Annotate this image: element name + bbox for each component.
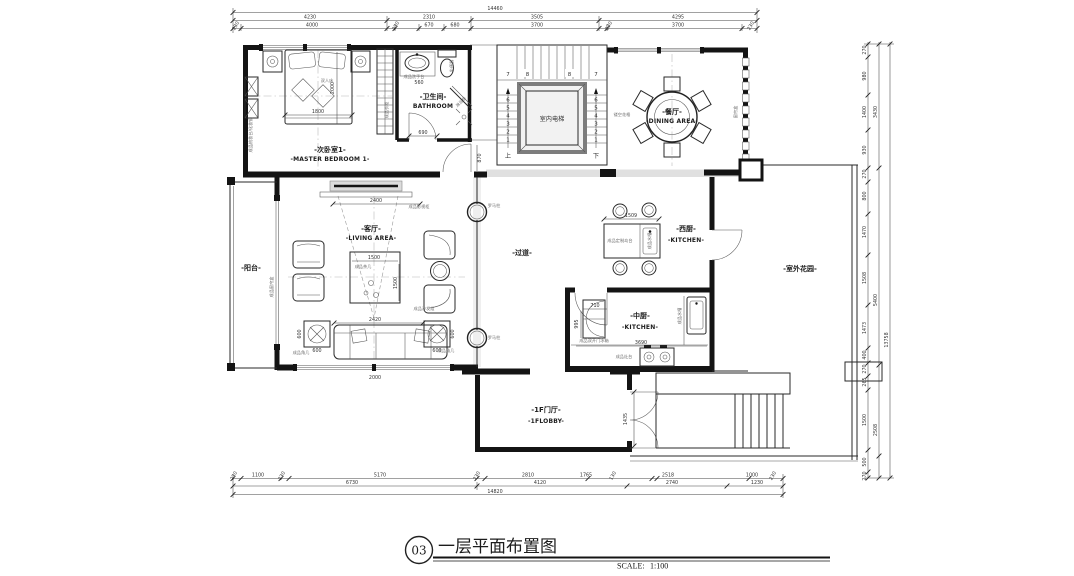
dim-bottom: 6730 [346, 480, 358, 486]
walls [243, 44, 749, 452]
room-label-bathroom-cn: -卫生间- [420, 92, 447, 101]
stair-number: 6 [594, 98, 598, 104]
nightstand [263, 51, 282, 72]
dim-right-outer: 3430 [873, 106, 879, 118]
label-tv-cabinet: 成品影视柜 [409, 203, 430, 210]
stair-number: 3 [506, 122, 510, 128]
dim-fridge-d: 995 [574, 319, 580, 328]
room-living: 2400 1500 1500 2420 600 600 600 600 2000… [268, 181, 501, 381]
dim-sofa: 2420 [369, 317, 381, 323]
stair-number: 2 [594, 130, 598, 136]
label-column: 罗马柱 [488, 202, 501, 209]
label-curtain: 成品窗帘盒 [268, 276, 275, 298]
room-mid-kitchen: 710 995 3690 成品双开门冰箱 成品灶台 成品水槽 -中厨- -KIT… [571, 293, 708, 366]
dim-top: 230 [604, 21, 614, 32]
label-stairs-down: 下 [593, 153, 599, 160]
stair-number: 5 [594, 106, 598, 112]
room-balcony [227, 177, 277, 371]
bar-stool [613, 261, 627, 275]
label-dresser: 成品梳妆台/化妆镜 [247, 117, 254, 153]
label-shower: 淋浴房 [454, 95, 468, 109]
room-label-corridor: -过道- [512, 248, 532, 257]
dim-tv: 2400 [370, 198, 382, 204]
dim-entry-door: 1435 [623, 413, 629, 425]
dim-right: 270 [862, 471, 868, 480]
title-block: 03 一层平面布置图 SCALE: 1:100 [406, 537, 831, 571]
dim-right-outer: 2508 [873, 424, 879, 436]
dim-top: 4000 [306, 23, 318, 29]
stair-number: 3 [594, 122, 598, 128]
armchair [293, 274, 324, 301]
dim-fridge-w: 710 [590, 303, 599, 309]
label-curtain-box: 窗帘盒 [732, 105, 739, 118]
dim-chain-bottom: 230 1100 230 5170 230 2810 1765 130 2518… [229, 471, 785, 498]
label-toilet: 坐便器 [448, 59, 455, 72]
room-label-living-cn: -客厅- [361, 224, 381, 233]
label-island-sink: 成品水槽 [646, 232, 653, 250]
scale-label: SCALE: [617, 562, 645, 571]
dim-top: 4230 [304, 15, 316, 21]
label-corner-table: 成品角几 [293, 349, 311, 356]
label-corner-table: 成品角几 [438, 347, 456, 354]
dim-right-outer: 5400 [873, 294, 879, 306]
floor-plan-drawing: 14460 4230 2310 3505 4295 230 4000 230 6… [0, 0, 1074, 576]
dim-right: 500 [862, 457, 868, 466]
dim-right: 1500 [862, 414, 868, 426]
dim-right: 400 [862, 350, 868, 359]
label-wardrobe: 成品衣柜 [383, 102, 390, 119]
dim-bottom: 4120 [534, 480, 546, 486]
dim-right: 270 [862, 364, 868, 373]
dim-bottom-total: 14820 [487, 489, 502, 495]
label-lattice: 镂空花格 [614, 111, 632, 118]
dim-chain-right: 270 980 1400 930 270 800 1470 1508 1473 … [862, 42, 894, 481]
dim-bottom: 1230 [751, 480, 763, 486]
dim-hall-door: 870 [477, 153, 483, 162]
dim-corner-table: 600 [297, 329, 303, 338]
corner-table [304, 321, 330, 347]
room-garden: -室外花园- [630, 160, 882, 461]
floor-plan-sheet: 14460 4230 2310 3505 4295 230 4000 230 6… [0, 0, 1074, 576]
drawing-number: 03 [411, 544, 426, 558]
label-basin: 成品洗手台 [404, 73, 425, 80]
dim-top: 2310 [423, 15, 435, 21]
dim-bottom: 1000 [746, 473, 758, 479]
sofa [334, 325, 447, 359]
dim-bed-depth: 2000 [330, 82, 336, 94]
room-label-mid-kitchen-cn: -中厨- [630, 311, 650, 320]
label-elevator: 室内电梯 [540, 115, 565, 123]
stair-number: 5 [506, 106, 510, 112]
dim-counter: 3690 [635, 340, 647, 346]
room-west-kitchen: 1509 成品定制岛台 成品水槽 -西厨- -KITCHEN- [602, 203, 742, 275]
dim-right: 270 [862, 169, 868, 178]
room-label-dining-cn: -餐厅- [662, 107, 682, 116]
label-sink: 成品水槽 [676, 307, 683, 325]
stair-number: 4 [506, 114, 510, 120]
dim-right: 800 [862, 191, 868, 200]
label-fridge: 成品双开门冰箱 [579, 337, 608, 344]
dim-bottom: 2518 [662, 473, 674, 479]
sink [687, 297, 706, 334]
dim-right: 1508 [862, 272, 868, 284]
dim-top: 670 [424, 23, 433, 29]
bar-stool [642, 261, 656, 275]
dim-bed-width: 1800 [312, 109, 324, 115]
armchair [424, 231, 455, 259]
dim-right: 930 [862, 145, 868, 154]
stair-number: 6 [506, 98, 510, 104]
garden-door [712, 230, 742, 260]
dim-bottom: 2810 [522, 473, 534, 479]
bar-stool [642, 203, 656, 217]
dim-top: 230 [746, 21, 756, 32]
dim-right: 1400 [862, 106, 868, 118]
dim-right: 1470 [862, 226, 868, 238]
dim-top: 3700 [531, 23, 543, 29]
stair-number: 8 [568, 72, 572, 78]
room-label-living-en: -LIVING AREA- [346, 235, 397, 242]
porch-steps [656, 373, 790, 448]
armchair [293, 241, 324, 268]
wardrobe [377, 49, 393, 134]
dim-coffee-table-w: 1500 [368, 255, 380, 261]
label-double-bed: 双人床 [321, 77, 334, 84]
staircase: 室内电梯 7 8 8 7 6 5 4 3 2 1 6 5 4 3 2 1 上 下 [497, 45, 607, 165]
label-sofa: 成品沙发组 [414, 305, 435, 312]
stair-number: 1 [594, 138, 598, 144]
dim-bottom: 230 [277, 471, 287, 482]
label-coffee-table: 成品茶几 [355, 263, 373, 270]
dim-right: 270 [862, 45, 868, 54]
room-label-lobby-en: -1FLOBBY- [528, 418, 564, 425]
label-island: 成品定制岛台 [607, 237, 632, 244]
washbasin [400, 52, 435, 76]
nightstand [351, 51, 370, 72]
room-label-bedroom-en: -MASTER BEDROOM 1- [290, 156, 369, 163]
label-column: 罗马柱 [488, 334, 501, 341]
dim-chain-top: 14460 4230 2310 3505 4295 230 4000 230 6… [231, 6, 760, 33]
room-master-bedroom: 1800 2000 双人床 成品梳妆台/化妆镜 成品衣柜 -次卧室1- -MAS… [245, 49, 393, 170]
drawing-title: 一层平面布置图 [438, 537, 557, 557]
room-label-bedroom-cn: -次卧室1- [314, 145, 346, 154]
dim-bottom: 1765 [580, 473, 592, 479]
scale-value: 1:100 [650, 562, 668, 571]
dim-corner-table: 600 [312, 348, 321, 354]
label-stairs-up: 上 [505, 152, 511, 160]
dim-right: 980 [862, 71, 868, 80]
dim-bottom: 2740 [666, 480, 678, 486]
room-dining: -餐厅- -DINING AREA- 镂空花格 窗帘盒 [614, 54, 739, 166]
dim-bath-door: 690 [418, 130, 427, 136]
label-stove: 成品灶台 [616, 353, 633, 360]
dim-top: 230 [391, 21, 401, 32]
stair-number: 2 [506, 130, 510, 136]
stair-number: 8 [526, 72, 530, 78]
dim-bottom: 130 [608, 471, 618, 482]
dim-corner-table: 600 [450, 329, 456, 338]
room-label-bathroom-en: BATHROOM [413, 103, 453, 110]
dim-top: 3505 [531, 15, 543, 21]
dim-right: 1473 [862, 322, 868, 334]
room-lobby: 1435 -1F门厅- -1FLOBBY- [528, 390, 658, 449]
dim-bottom: 1100 [252, 473, 264, 479]
dim-top-total: 14460 [487, 6, 502, 12]
room-label-mid-kitchen-en: -KITCHEN- [622, 324, 659, 331]
room-label-balcony: -阳台- [241, 263, 261, 272]
stair-number: 4 [594, 114, 598, 120]
dim-right-total: 13758 [884, 332, 890, 347]
dim-bottom: 230 [472, 471, 482, 482]
dim-bottom: 230 [768, 471, 778, 482]
stove [640, 345, 674, 366]
room-label-west-kitchen-en: -KITCHEN- [668, 237, 705, 244]
room-label-west-kitchen-cn: -西厨- [676, 224, 696, 233]
stair-number: 1 [506, 138, 510, 144]
dim-basin: 560 [414, 80, 423, 86]
room-label-dining-en: -DINING AREA- [646, 118, 698, 125]
dim-bottom: 5170 [374, 473, 386, 479]
hall-door [443, 144, 471, 172]
dim-top: 680 [450, 23, 459, 29]
dim-top: 3700 [672, 23, 684, 29]
tv-unit [320, 181, 412, 197]
dim-coffee-table-d: 1500 [393, 277, 399, 289]
dim-living-south: 2000 [369, 375, 381, 381]
stair-number: 7 [506, 72, 510, 78]
room-label-garden: -室外花园- [783, 264, 817, 273]
room-label-lobby-cn: -1F门厅- [531, 405, 561, 414]
dim-right: 265 [862, 377, 868, 386]
dim-island: 1509 [625, 213, 637, 219]
side-table [431, 262, 450, 281]
dim-bottom: 230 [229, 471, 239, 482]
dim-top: 4295 [672, 15, 684, 21]
stair-number: 7 [594, 72, 598, 78]
elevator: 室内电梯 [519, 84, 585, 152]
